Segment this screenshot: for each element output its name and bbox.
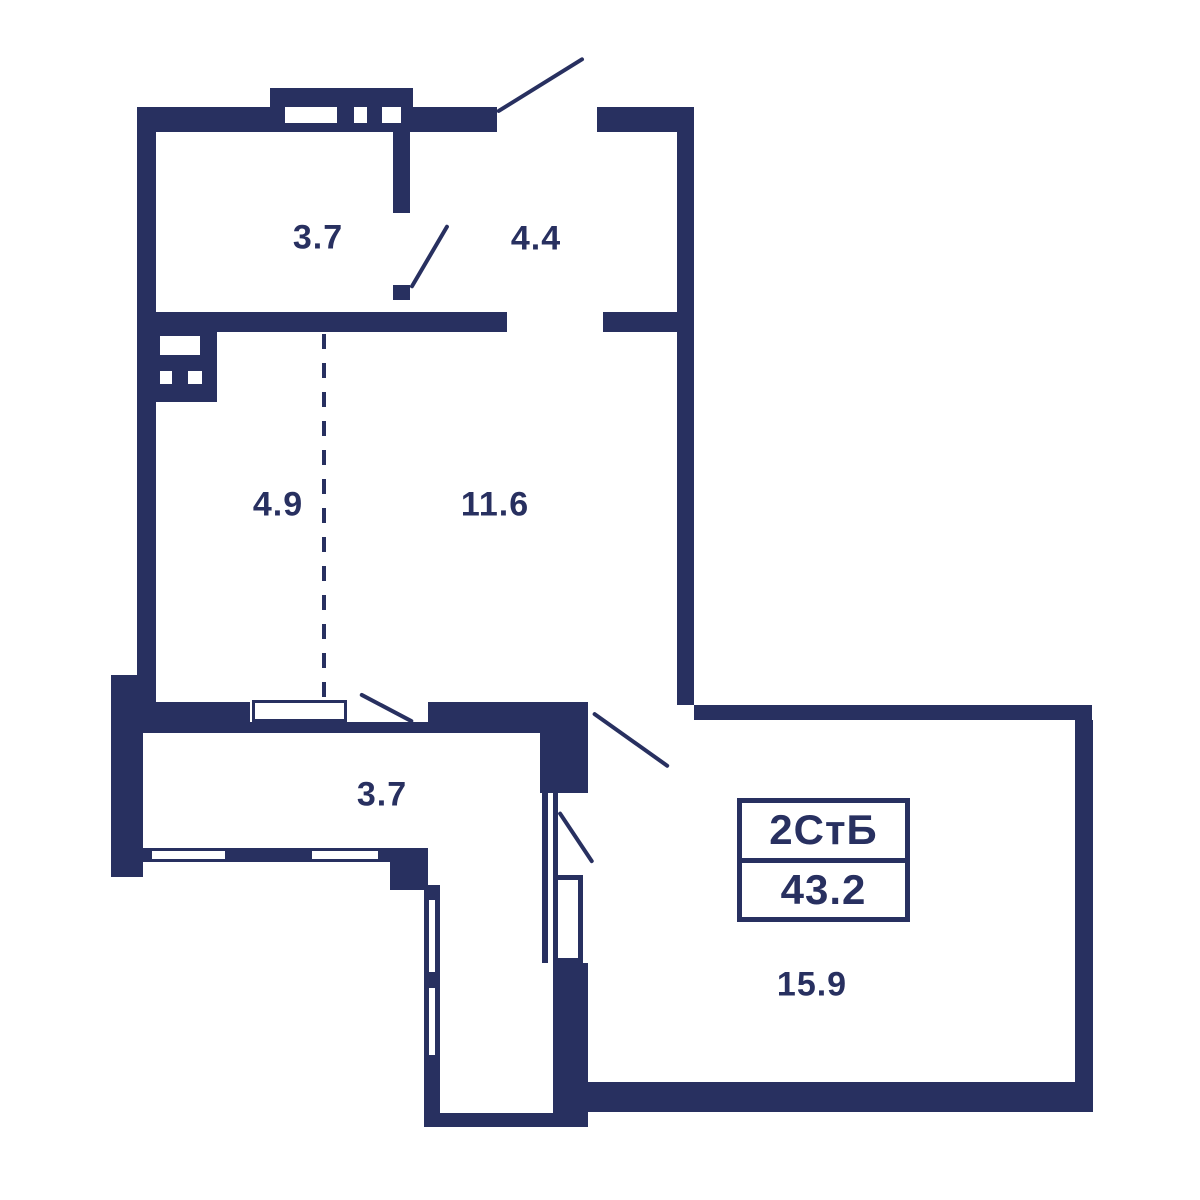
wall-divider-stub xyxy=(393,285,410,300)
door-swing-entrance xyxy=(496,57,585,114)
strip-window-divider-top xyxy=(424,885,440,900)
wall-159-bottom xyxy=(583,1082,1093,1112)
window-a-post-left xyxy=(140,848,152,862)
wall-left-outer xyxy=(137,107,156,702)
vent-shaft-block xyxy=(270,88,413,108)
floor-plan: 3.7 4.4 4.9 11.6 3.7 15.9 2СтБ 43.2 xyxy=(0,0,1200,1200)
strip-bottom-wall xyxy=(426,1113,588,1127)
door-swing-room-159 xyxy=(592,711,670,768)
apartment-info-box: 2СтБ 43.2 xyxy=(737,798,910,922)
window-a-post-right xyxy=(225,848,237,862)
room-area-label-37-top: 3.7 xyxy=(293,219,343,258)
wall-between-windows xyxy=(237,848,300,862)
room-area-label-159: 15.9 xyxy=(777,966,847,1005)
room-area-label-116: 11.6 xyxy=(461,486,529,525)
balcony-door-frame xyxy=(553,875,583,963)
strip-window-divider-bottom xyxy=(424,1055,440,1070)
wall-balcony-sill xyxy=(250,722,428,733)
dashed-zoning-line xyxy=(322,334,326,702)
wall-right-upper xyxy=(677,107,694,705)
wall-mid-band-left xyxy=(137,312,507,332)
apartment-type-label: 2СтБ xyxy=(737,798,910,863)
balcony-top-window xyxy=(252,700,347,722)
wall-divider-37-44 xyxy=(393,132,410,213)
vent-shaft-opening-3 xyxy=(382,107,401,123)
wall-159-right xyxy=(1075,720,1093,1112)
strip-thin-line-b xyxy=(553,793,558,875)
window-b-post-left xyxy=(300,848,312,862)
window-a-line-bottom xyxy=(152,859,225,862)
vent-shaft-opening-2 xyxy=(354,107,367,123)
wall-balcony-top-right xyxy=(428,702,588,733)
wall-corner-block xyxy=(390,848,428,890)
closet-opening-1 xyxy=(160,336,200,355)
room-area-label-49: 4.9 xyxy=(253,486,303,525)
window-b-line-top xyxy=(312,848,378,851)
closet-opening-3 xyxy=(188,371,202,384)
room-area-label-44: 4.4 xyxy=(511,220,561,259)
strip-right-block xyxy=(540,733,588,793)
wall-balcony-top-left xyxy=(137,702,250,733)
window-b-post-right xyxy=(378,848,390,862)
door-swing-balcony xyxy=(359,692,414,724)
wall-mid-band-right xyxy=(603,312,677,332)
window-b-line-bottom xyxy=(312,859,378,862)
vent-shaft-opening-1 xyxy=(285,107,337,123)
wall-pier-left xyxy=(111,675,143,877)
strip-window-divider-mid xyxy=(424,972,440,988)
strip-thin-line-a xyxy=(542,793,548,963)
room-area-label-37-bottom: 3.7 xyxy=(357,776,407,815)
wall-159-top xyxy=(694,705,1092,720)
closet-opening-2 xyxy=(160,371,172,384)
apartment-total-area: 43.2 xyxy=(737,863,910,923)
door-swing-interior-37-44 xyxy=(409,224,449,289)
door-swing-strip xyxy=(557,811,594,864)
window-a-line-top xyxy=(152,848,225,851)
